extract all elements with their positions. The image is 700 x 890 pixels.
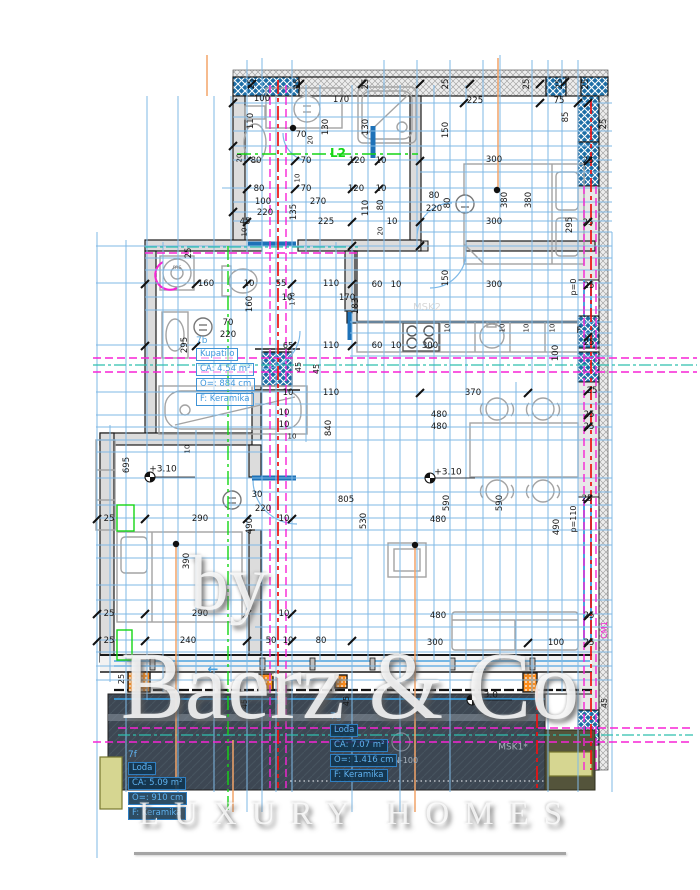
washing-machine-icon xyxy=(160,256,194,290)
floor-plan-svg xyxy=(0,0,700,890)
tv-unit-icon xyxy=(388,543,426,577)
floor-plan-canvas: 25252525252525251001701101301307020L2807… xyxy=(0,0,700,890)
kitchen-counter-icon xyxy=(357,322,578,352)
terrace xyxy=(100,672,595,809)
sofa-icon xyxy=(452,612,578,650)
level-marker xyxy=(145,472,195,482)
terrace-columns xyxy=(128,672,537,692)
washer-arc xyxy=(155,262,177,290)
bath-sink-icon xyxy=(162,312,188,358)
fixtures xyxy=(96,87,584,650)
